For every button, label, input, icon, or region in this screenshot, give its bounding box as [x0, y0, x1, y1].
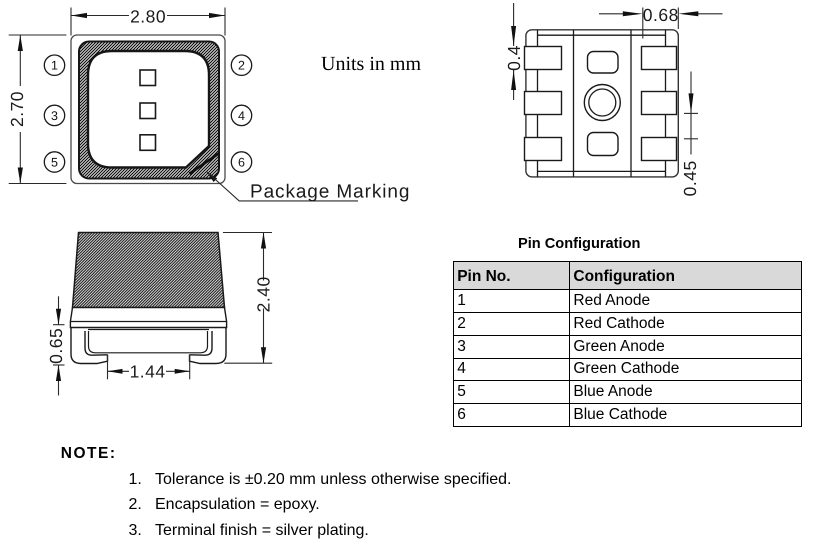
svg-text:4: 4 — [238, 109, 245, 123]
svg-text:2: 2 — [238, 59, 245, 73]
svg-text:6: 6 — [238, 156, 245, 170]
svg-text:0.65: 0.65 — [46, 328, 66, 364]
svg-text:3: 3 — [51, 109, 58, 123]
svg-text:0.45: 0.45 — [680, 160, 700, 196]
svg-text:2.70: 2.70 — [7, 91, 27, 127]
svg-text:1.44: 1.44 — [130, 361, 166, 381]
svg-text:5: 5 — [51, 156, 58, 170]
svg-text:Units in mm: Units in mm — [321, 53, 421, 75]
svg-text:2.40: 2.40 — [253, 276, 273, 312]
svg-text:Package Marking: Package Marking — [250, 181, 410, 202]
svg-text:0.4: 0.4 — [504, 45, 524, 71]
svg-text:1: 1 — [51, 59, 58, 73]
svg-text:2.80: 2.80 — [130, 6, 166, 26]
svg-text:0.68: 0.68 — [643, 5, 679, 25]
